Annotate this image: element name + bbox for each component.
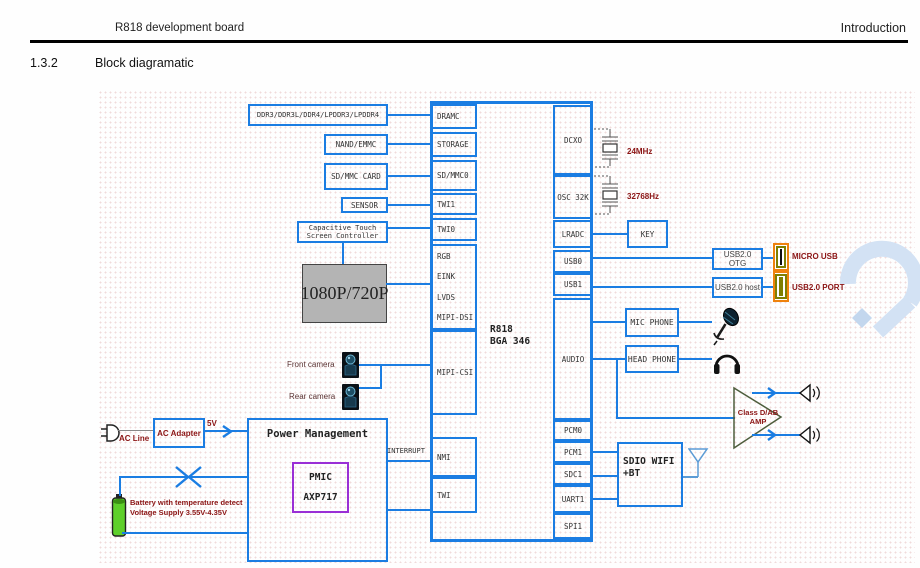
wire-audio-head [593, 358, 625, 360]
display-box: 1080P/720P [302, 264, 387, 323]
speaker-bottom-icon [798, 425, 824, 445]
head-phone-box: HEAD PHONE [625, 345, 679, 373]
wire-otg-connector [763, 257, 773, 259]
rear-camera-label: Rear camera [289, 392, 335, 401]
wire-lradc-key [593, 233, 627, 235]
5v-label: 5V [207, 419, 217, 428]
battery-label-line2: Voltage Supply 3.55V-4.35V [130, 508, 227, 517]
wire-antenna-sdio [683, 476, 698, 478]
touch-controller-box: Capacitive Touch Screen Controller [297, 221, 388, 243]
mic-phone-box: MIC PHONE [625, 308, 679, 337]
usb-port-label: USB2.0 PORT [792, 283, 844, 292]
section-title: Block diagramatic [95, 56, 194, 70]
watermark-logo [826, 222, 920, 340]
crystal-32k-label: 32768Hz [627, 192, 659, 201]
crystal-32k-icon [592, 170, 628, 220]
chip-port-pcm1: PCM1 [553, 441, 593, 463]
wire-battery-up [119, 477, 121, 496]
wire-sdc1-sdio [593, 475, 617, 477]
wire-head-amp-vert [616, 358, 618, 419]
chip-port-usb1: USB1 [553, 273, 593, 296]
ac-adapter-box: AC Adapter [153, 418, 205, 448]
chip-port-sdc1: SDC1 [553, 463, 593, 485]
wire-usb0-otg [593, 257, 712, 259]
chip-port-twi1: TWI1 [430, 193, 477, 215]
wire-sensor-twi1 [387, 204, 431, 206]
wire-ddr-dramc [387, 114, 431, 116]
sdio-wifi-box: SDIO WIFI +BT [617, 442, 683, 507]
wire-plug-adapter [118, 430, 153, 431]
chip-port-osc32k: OSC 32K [553, 175, 593, 219]
crystal-24mhz-label: 24MHz [627, 147, 652, 156]
wire-battery-bottom [122, 532, 247, 534]
wire-host-connector [763, 286, 773, 288]
chip-port-lvds: LVDS [437, 293, 455, 302]
front-camera-label: Front camera [287, 360, 335, 369]
chip-port-usb0: USB0 [553, 250, 593, 273]
wire-pm-twi [388, 509, 431, 511]
chip-port-twi0: TWI0 [430, 218, 477, 241]
wire-micbox-icon [679, 321, 712, 323]
wire-interrupt-nmi [388, 460, 431, 462]
chip-port-display-group: RGB EINK LVDS MIPI-DSI [430, 244, 477, 330]
chip-name: R818 BGA 346 [490, 324, 530, 347]
document-page: R818 development board Introduction 1.3.… [0, 0, 920, 568]
power-management-title: Power Management [249, 428, 386, 440]
header-rule [30, 40, 908, 43]
chip-port-storage: STORAGE [430, 132, 477, 157]
section-number: 1.3.2 [30, 56, 58, 70]
wire-amp-input [616, 417, 735, 419]
micro-usb-label: MICRO USB [792, 252, 838, 261]
wire-nand-storage [387, 143, 431, 145]
arrow-out2-icon [766, 428, 778, 442]
wire-frontcam-mipicsi [359, 364, 431, 366]
chip-port-dcxo: DCXO [553, 105, 593, 175]
usb-host-box: USB2.0 host [712, 277, 763, 298]
key-box: KEY [627, 220, 668, 248]
rear-camera-icon [342, 384, 359, 410]
wire-touch-display [342, 243, 344, 264]
amp-label: Class D/AB AMP [736, 408, 780, 426]
wire-usb1-host [593, 286, 712, 288]
chip-port-audio: AUDIO [553, 298, 593, 420]
header-right: Introduction [841, 21, 906, 35]
crystal-24mhz-icon [592, 123, 628, 173]
wire-sdcard-sdmmc0 [387, 175, 431, 177]
chip-port-nmi: NMI [430, 437, 477, 477]
sdcard-box: SD/MMC CARD [324, 163, 388, 190]
arrow-out1-icon [766, 386, 778, 400]
wire-display-chip [386, 283, 431, 285]
wire-pcm1-sdio [593, 451, 617, 453]
nand-box: NAND/EMMC [324, 134, 388, 155]
sensor-box: SENSOR [341, 197, 388, 213]
chip-port-uart1: UART1 [553, 485, 593, 513]
wire-uart1-sdio [593, 498, 617, 500]
front-camera-icon [342, 352, 359, 378]
battery-label-line1: Battery with temperature detect [130, 498, 243, 507]
wire-headbox-icon [679, 358, 712, 360]
usb-otg-box: USB2.0 OTG [712, 248, 763, 270]
ac-plug-icon [100, 423, 120, 443]
arrow-5v-icon [221, 424, 234, 439]
battery-x-symbol [175, 465, 202, 489]
chip-port-twi: TWI [430, 477, 477, 513]
header-left: R818 development board [115, 22, 244, 34]
usb-port-connector-icon [773, 271, 789, 302]
chip-port-sdmmc0: SD/MMC0 [430, 160, 477, 191]
speaker-top-icon [798, 383, 824, 403]
ac-line-label: AC Line [119, 434, 149, 443]
microphone-icon [710, 306, 742, 346]
chip-port-spi1: SPI1 [553, 513, 593, 539]
chip-port-mipidsi: MIPI-DSI [437, 313, 473, 322]
wire-camera-bus [380, 364, 382, 389]
chip-port-rgb: RGB [437, 252, 451, 261]
wire-touch-twi0 [387, 227, 431, 229]
headphone-icon [712, 344, 742, 376]
chip-port-eink: EINK [437, 272, 455, 281]
chip-port-mipicsi: MIPI-CSI [430, 330, 477, 415]
pmic-box: PMIC AXP717 [292, 462, 349, 513]
wire-audio-mic [593, 321, 625, 323]
chip-port-dramc: DRAMC [430, 104, 477, 129]
ddr-box: DDR3/DDR3L/DDR4/LPDDR3/LPDDR4 [248, 104, 388, 126]
micro-usb-connector-icon [773, 243, 789, 271]
chip-port-lradc: LRADC [553, 220, 593, 248]
wire-rearcam-bus [359, 387, 382, 389]
interrupt-label: INTERRUPT [387, 447, 425, 455]
chip-port-pcm0: PCM0 [553, 420, 593, 441]
